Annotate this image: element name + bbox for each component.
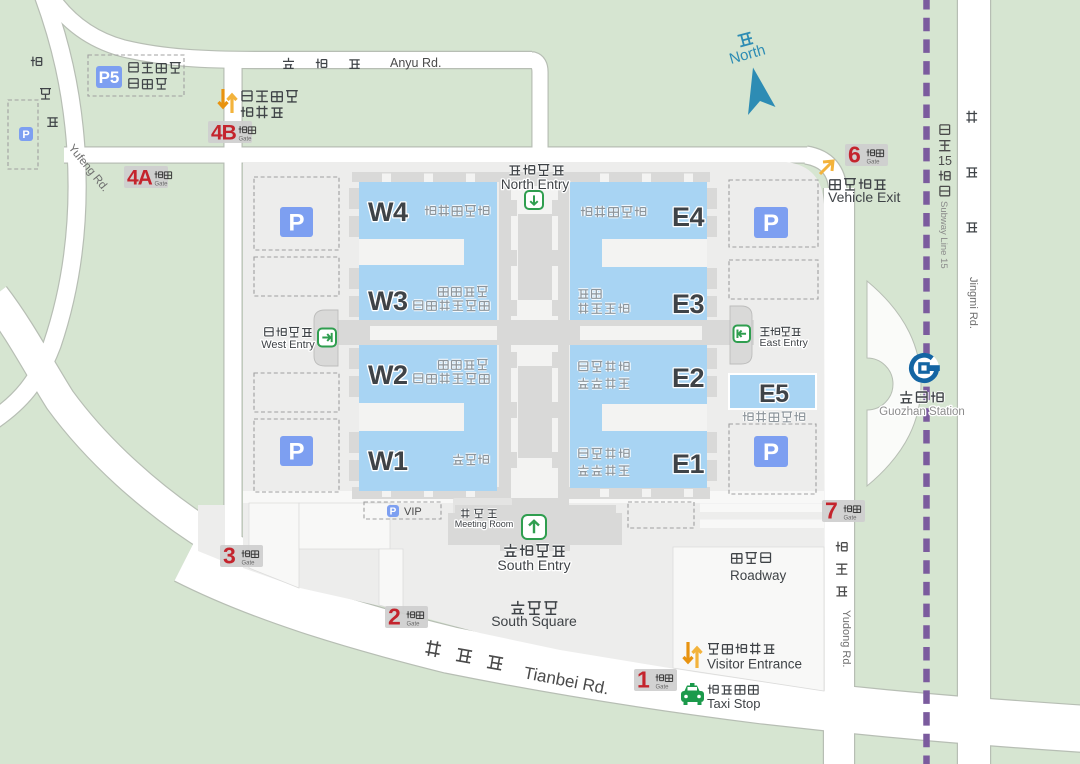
svg-text:P5: P5: [99, 68, 120, 87]
svg-text:Meeting Room: Meeting Room: [455, 519, 514, 529]
svg-text:VIP: VIP: [404, 506, 422, 518]
svg-text:Anyu Rd.: Anyu Rd.: [390, 56, 441, 70]
svg-text:Gate: Gate: [844, 516, 858, 522]
svg-text:E3: E3: [672, 289, 705, 319]
svg-text:Gate: Gate: [239, 137, 253, 143]
svg-text:E4: E4: [672, 202, 705, 232]
svg-text:W4: W4: [368, 197, 408, 227]
svg-text:East Entry: East Entry: [760, 337, 809, 349]
svg-text:South Entry: South Entry: [497, 557, 570, 573]
svg-text:Visitor Entrance: Visitor Entrance: [707, 657, 802, 672]
svg-text:W1: W1: [368, 446, 408, 476]
svg-text:Gate: Gate: [155, 182, 169, 188]
svg-text:7: 7: [825, 498, 837, 524]
svg-text:South Square: South Square: [491, 613, 577, 629]
svg-text:W3: W3: [368, 286, 408, 316]
svg-text:W2: W2: [368, 360, 408, 390]
svg-text:Gate: Gate: [656, 685, 670, 691]
svg-text:P: P: [22, 129, 29, 141]
svg-text:Guozhan Station: Guozhan Station: [879, 406, 965, 418]
svg-text:Gate: Gate: [407, 622, 421, 628]
svg-text:Roadway: Roadway: [730, 568, 787, 583]
svg-text:E1: E1: [672, 449, 705, 479]
svg-text:E2: E2: [672, 363, 704, 393]
svg-text:15: 15: [938, 154, 952, 168]
svg-text:3: 3: [223, 543, 235, 569]
svg-text:4B: 4B: [211, 122, 237, 145]
svg-text:Subway Line 15: Subway Line 15: [938, 201, 949, 269]
svg-text:Jingmi Rd.: Jingmi Rd.: [967, 277, 979, 329]
svg-text:P: P: [763, 210, 779, 237]
svg-text:Yudong Rd.: Yudong Rd.: [840, 610, 852, 668]
svg-text:P: P: [288, 439, 304, 466]
svg-text:1: 1: [637, 667, 650, 693]
svg-text:Gate: Gate: [242, 561, 256, 567]
svg-text:P: P: [390, 507, 397, 518]
svg-text:P: P: [763, 439, 779, 466]
svg-text:P: P: [288, 210, 304, 237]
svg-text:Vehicle Exit: Vehicle Exit: [828, 189, 900, 205]
svg-text:Taxi Stop: Taxi Stop: [707, 696, 760, 711]
svg-text:E5: E5: [759, 380, 789, 408]
svg-text:6: 6: [848, 142, 860, 168]
svg-text:West Entry: West Entry: [261, 339, 315, 351]
svg-text:Gate: Gate: [867, 160, 881, 166]
svg-text:2: 2: [388, 604, 400, 630]
svg-text:North Entry: North Entry: [501, 177, 570, 192]
svg-text:4A: 4A: [127, 167, 153, 190]
